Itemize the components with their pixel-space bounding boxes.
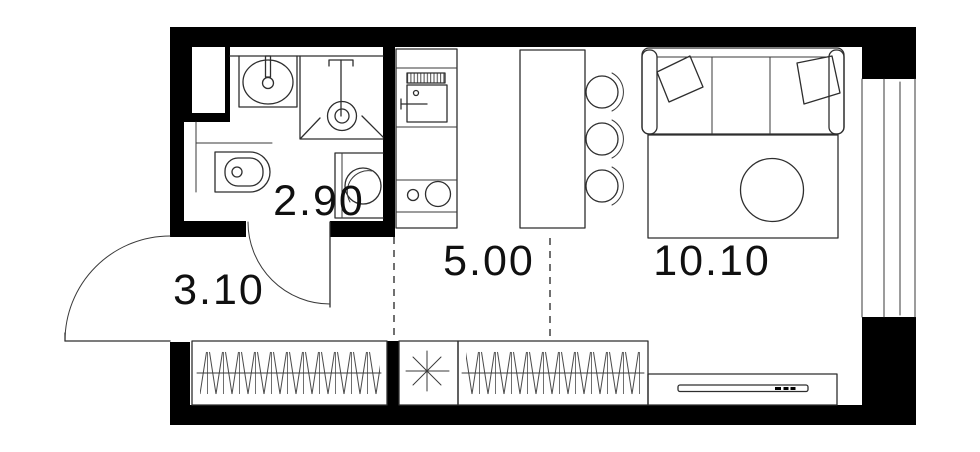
- vent-grille-icon: [407, 73, 445, 83]
- burner-small-icon: [408, 190, 419, 201]
- sofa-armrest-left: [642, 50, 657, 134]
- bar-stools: [586, 73, 623, 205]
- wardrobe-right: [458, 341, 648, 405]
- kitchen-island: [520, 50, 585, 228]
- wall-wardrobe-divider: [387, 341, 399, 405]
- sofa-pillow-icon: [657, 56, 703, 102]
- utility-star-icon: [406, 351, 449, 391]
- toilet-bowl-inner: [225, 158, 263, 186]
- sink-faucet-icon: [266, 56, 271, 77]
- wardrobe-left: [192, 341, 387, 405]
- tv-console-outline: [648, 374, 837, 405]
- room-label-kitchen: 5.00: [443, 237, 535, 285]
- toilet-flush-icon: [232, 167, 242, 177]
- room-label-bathroom: 2.90: [273, 177, 365, 225]
- sink-basin-icon: [243, 60, 293, 104]
- wall-window-top-block: [862, 47, 916, 79]
- shower-bevel-right: [362, 116, 383, 137]
- window-right: [862, 79, 915, 317]
- floor-plan-canvas: 2.90 3.10 5.00 10.10: [0, 0, 980, 452]
- room-label-hallway: 3.10: [173, 266, 265, 314]
- burner-large-icon: [426, 182, 451, 207]
- shower-drain-inner-icon: [335, 109, 349, 123]
- tv-detail: [791, 387, 796, 390]
- utility-cell: [399, 341, 458, 405]
- coffee-table: [741, 159, 804, 222]
- cooktop: [408, 182, 451, 207]
- floor-plan: 2.90 3.10 5.00 10.10: [0, 0, 980, 452]
- sink-drain-icon: [263, 78, 274, 89]
- tv-detail: [775, 387, 781, 390]
- shower: [300, 56, 383, 139]
- sofa-armrest-right: [829, 50, 844, 134]
- rug: [648, 135, 838, 238]
- sofa: [642, 48, 844, 134]
- wall-niche-recess: [192, 47, 225, 113]
- bar-stool-seat: [586, 76, 618, 108]
- wall-window-bottom-block: [862, 317, 916, 425]
- entrance-door-swing-arc: [65, 236, 170, 341]
- wall-bottom: [170, 405, 916, 425]
- sofa-body: [642, 48, 844, 134]
- living-room: [642, 48, 844, 405]
- tv-console: [648, 374, 837, 405]
- wall-top: [170, 27, 916, 47]
- oven-unit: [401, 85, 447, 122]
- storage: [192, 341, 648, 405]
- room-label-living: 10.10: [653, 237, 771, 285]
- tv-detail: [784, 387, 789, 390]
- toilet: [196, 122, 272, 192]
- room-labels: 2.90 3.10 5.00 10.10: [173, 177, 771, 314]
- sofa-pillow-icon: [797, 56, 840, 104]
- oven-knob-icon: [414, 91, 419, 96]
- wall-bathroom-bottom-left: [170, 221, 246, 237]
- shower-bevel-left: [301, 118, 320, 138]
- wall-bathroom-right: [383, 47, 395, 223]
- sink-vanity: [239, 56, 297, 107]
- bar-stool-seat: [586, 123, 618, 155]
- shower-drain-outer-icon: [328, 102, 357, 131]
- kitchen: [396, 49, 623, 228]
- bar-stool-seat: [586, 170, 618, 202]
- wall-left-middle: [170, 122, 184, 237]
- vanity-outline: [239, 56, 297, 107]
